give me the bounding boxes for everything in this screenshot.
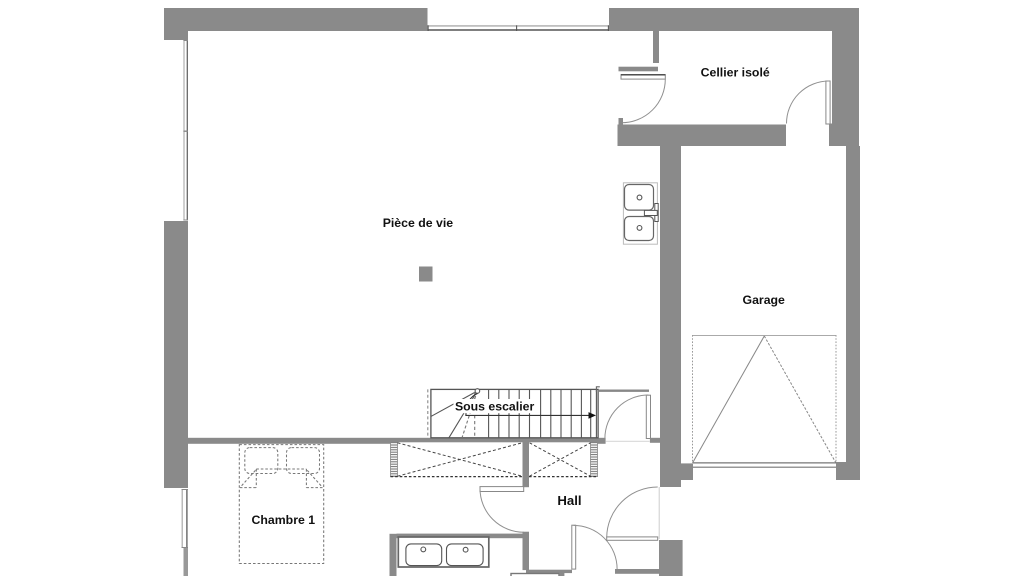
svg-text:Chambre 1: Chambre 1 — [252, 513, 316, 527]
svg-text:Sous escalier: Sous escalier — [455, 400, 535, 414]
svg-text:Garage: Garage — [743, 293, 786, 307]
svg-text:Pièce de vie: Pièce de vie — [383, 216, 454, 230]
svg-text:Hall: Hall — [557, 493, 581, 508]
svg-text:Cellier isolé: Cellier isolé — [701, 66, 770, 80]
